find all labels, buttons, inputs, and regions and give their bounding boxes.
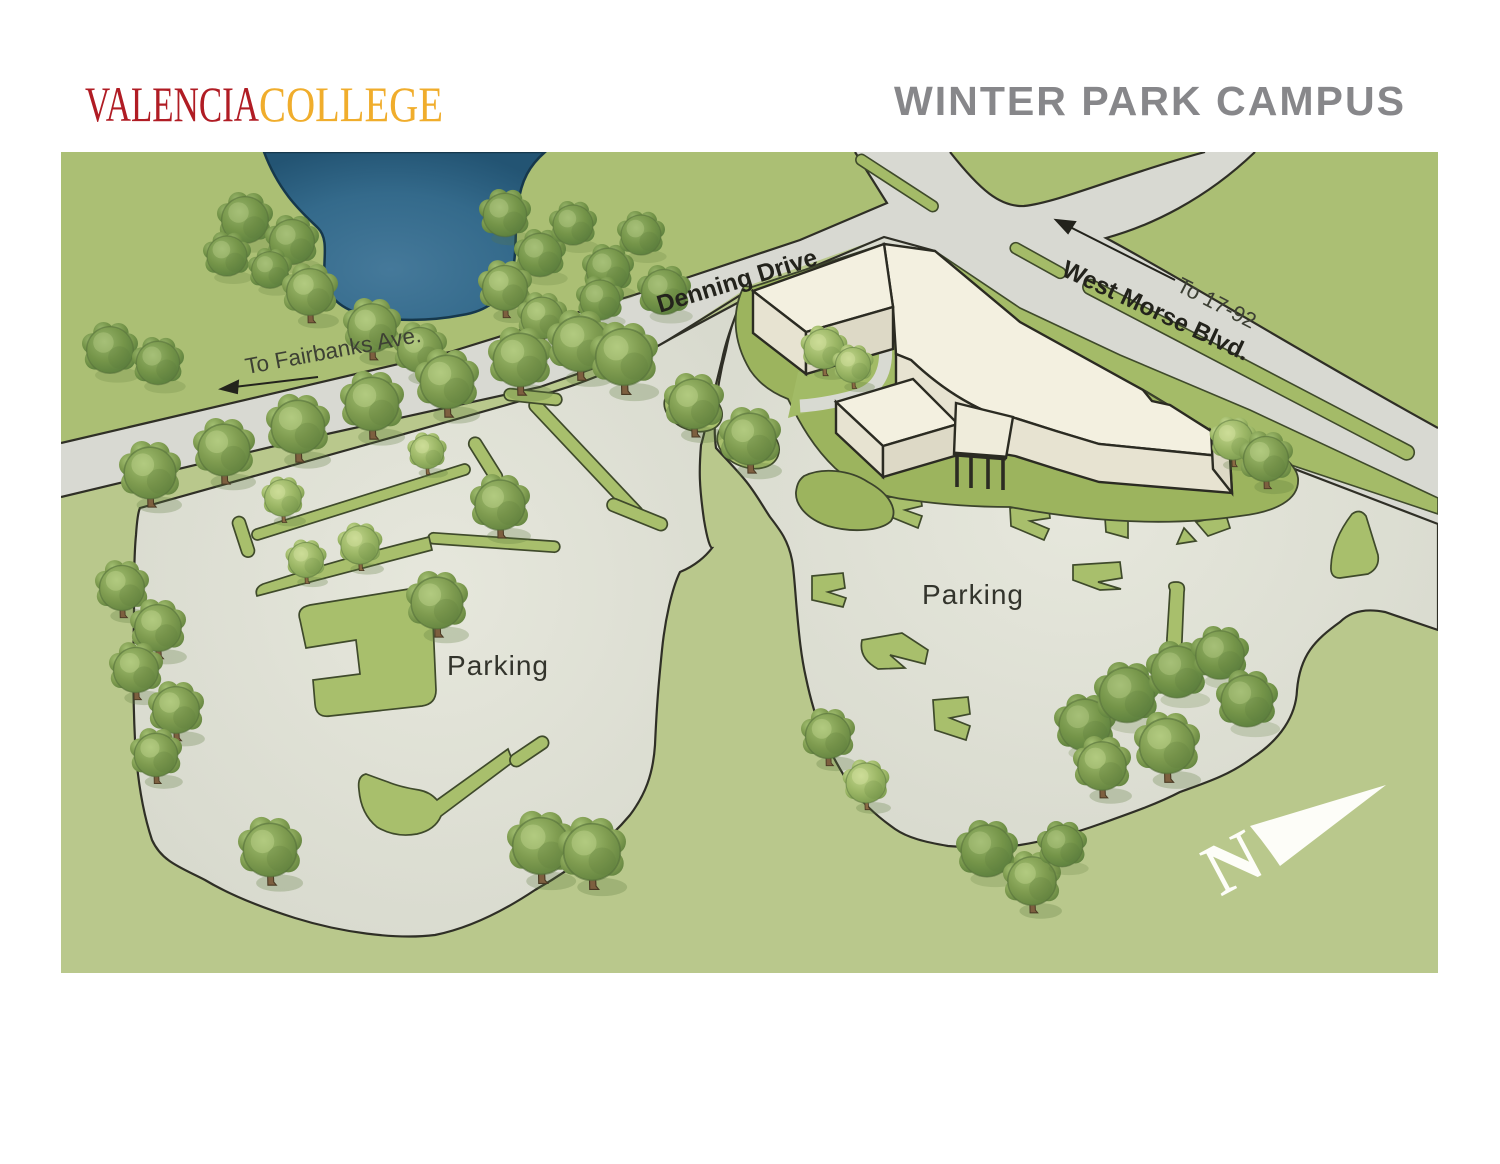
- svg-text:VALENCIA: VALENCIA: [85, 76, 259, 132]
- svg-text:Parking: Parking: [447, 650, 549, 681]
- svg-text:COLLEGE: COLLEGE: [259, 76, 443, 132]
- svg-text:WINTER PARK CAMPUS: WINTER PARK CAMPUS: [894, 78, 1406, 124]
- svg-text:Parking: Parking: [922, 579, 1024, 610]
